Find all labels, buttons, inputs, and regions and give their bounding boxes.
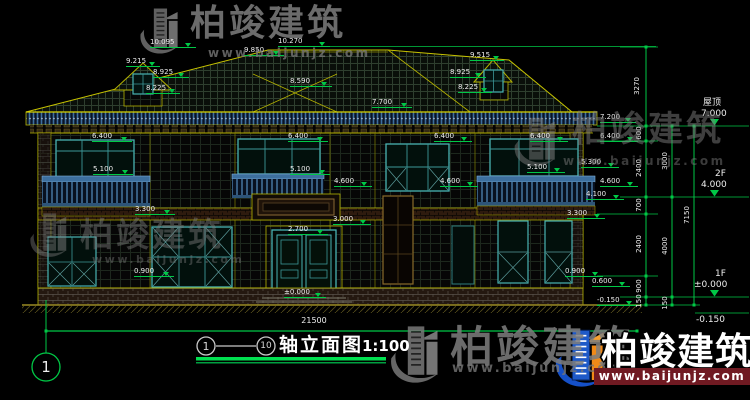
dim-chain-a: 150 [635,294,643,307]
level-marker-icon [122,170,128,174]
level-annotation: 9.215 [126,56,160,67]
level-annotation: 6.400 [92,131,132,142]
level-annotation: 6.400 [288,131,328,142]
level-marker-icon [178,73,184,77]
level-marker-icon [557,137,563,141]
dim-chain-c: 7150 [683,206,691,224]
brand-url-banner: www.baijunjz.com [594,368,750,385]
level-annotation: 5.100 [290,164,330,175]
level-value: 10.095 [150,39,175,46]
level-annotation: 0.600 [592,276,630,287]
drawing-title: 轴立面图 [279,336,363,355]
dim-chain-a: 900 [635,279,643,292]
watermark-brand-mid: 柏竣建筑 [572,113,724,148]
dim-top-vertical: 3270 [633,77,641,95]
level-annotation: 7.700 [372,97,412,108]
level-annotation: 8.225 [146,83,180,94]
level-annotation: 9.515 [470,50,504,61]
level-marker-icon [461,137,467,141]
level-annotation: 0.900 [134,266,174,277]
dim-chain-b: 150 [661,296,669,309]
level-annotation: 6.400 [530,131,568,142]
level-marker-icon [317,137,323,141]
level-annotation: -0.150 [597,295,637,306]
axis-circle-from: 1 [199,341,213,352]
level-annotation: 3.300 [567,208,605,219]
level-annotation: 8.925 [153,67,189,78]
watermark-url-mid: www.baijunjz.com [563,155,726,167]
level-annotation: 5.100 [93,164,133,175]
level-annotation: ±0.000 [284,287,326,298]
level-annotation: 3.300 [135,204,175,215]
level-marker-icon [361,182,367,186]
base-and-ground [22,288,642,313]
level-annotation: 4.100 [586,189,624,200]
level-annotation: 3.000 [333,214,371,225]
level-marker-icon [149,62,155,66]
level-marker-icon [121,137,127,141]
level-annotation: 8.225 [458,82,492,93]
level-marker-icon [594,214,600,218]
level-label-2f: 2F [715,170,726,179]
brand-logo-text: 柏竣建筑 [601,333,750,370]
level-marker-icon [360,220,366,224]
level-annotation: 2.700 [288,224,328,235]
level-label-roof: 屋顶 [703,99,721,108]
level-marker-icon [317,230,323,234]
level-marker-icon [554,168,560,172]
dim-total-width: 21500 [284,317,344,325]
watermark-url-left: www.baijunjz.com [92,254,244,265]
dim-chain-b: 4000 [661,237,669,255]
watermark-logo-left [30,213,66,256]
level-marker-icon [401,103,407,107]
dim-chain-a: 700 [635,198,643,211]
axis-circle-to: 10 [258,342,274,351]
level-annotation: 4.600 [334,176,372,187]
level-marker-icon [475,73,481,77]
watermark-brand-top: 柏竣建筑 [190,6,346,42]
level-marker-icon [164,210,170,214]
level-annotation: 5.100 [527,162,565,173]
cad-elevation-screenshot: 10.095 9.215 8.925 8.225 10.270 9.850 8.… [0,0,750,400]
drawing-scale: 1:100 [362,339,410,354]
level-marker-icon [319,170,325,174]
level-value-2f: 4.000 [701,181,727,190]
eave [26,112,597,133]
level-annotation: 6.400 [434,131,472,142]
level-marker-icon [481,88,487,92]
level-marker-icon [467,182,473,186]
axis-bubble-number: 1 [38,360,54,375]
level-marker-icon [321,82,327,86]
dim-chain-a: 2400 [635,235,643,253]
level-label-1f: 1F [715,270,726,279]
level-annotation: 8.590 [290,76,332,87]
level-marker-icon [493,56,499,60]
level-annotation: 8.925 [450,67,486,78]
level-marker-icon [163,272,169,276]
level-annotation: 4.600 [440,176,478,187]
second-floor [42,139,595,220]
level-value-1f: ±0.000 [694,281,727,290]
watermark-brand-left: 柏竣建筑 [80,218,224,251]
level-marker-icon [627,182,633,186]
level-marker-icon [315,293,321,297]
level-marker-icon [613,195,619,199]
level-marker-icon [626,301,632,305]
level-annotation: 4.600 [600,176,638,187]
level-marker-icon [169,89,175,93]
level-marker-icon [619,282,625,286]
level-value-ground: -0.150 [696,316,725,325]
watermark-url-top: www.baijunjz.com [208,47,371,59]
